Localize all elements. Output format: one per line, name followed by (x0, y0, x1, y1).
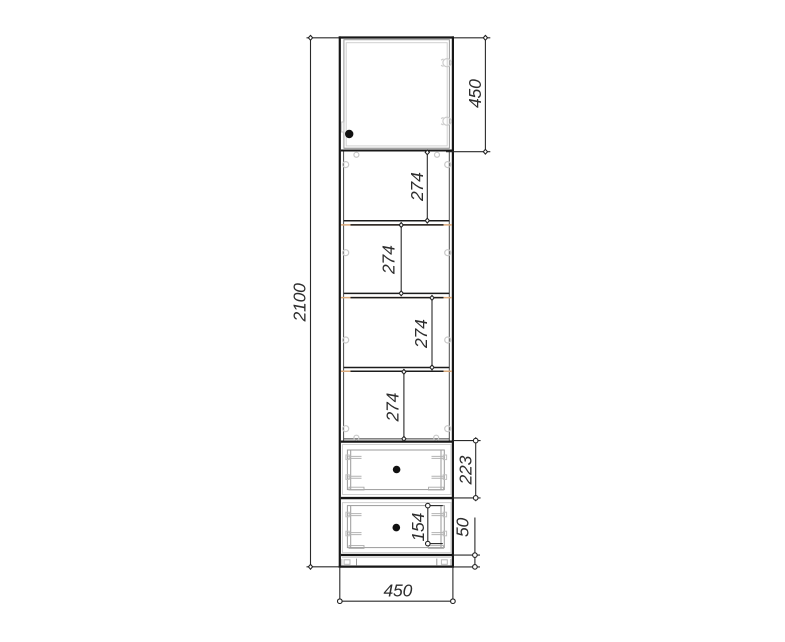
svg-text:274: 274 (383, 392, 403, 422)
svg-text:450: 450 (384, 581, 413, 601)
svg-text:2100: 2100 (290, 283, 310, 323)
svg-text:450: 450 (465, 79, 485, 108)
svg-text:274: 274 (407, 172, 427, 202)
svg-text:223: 223 (456, 455, 476, 485)
svg-text:274: 274 (379, 245, 399, 275)
svg-text:274: 274 (411, 319, 431, 349)
svg-text:50: 50 (452, 517, 472, 537)
svg-text:154: 154 (408, 512, 428, 541)
